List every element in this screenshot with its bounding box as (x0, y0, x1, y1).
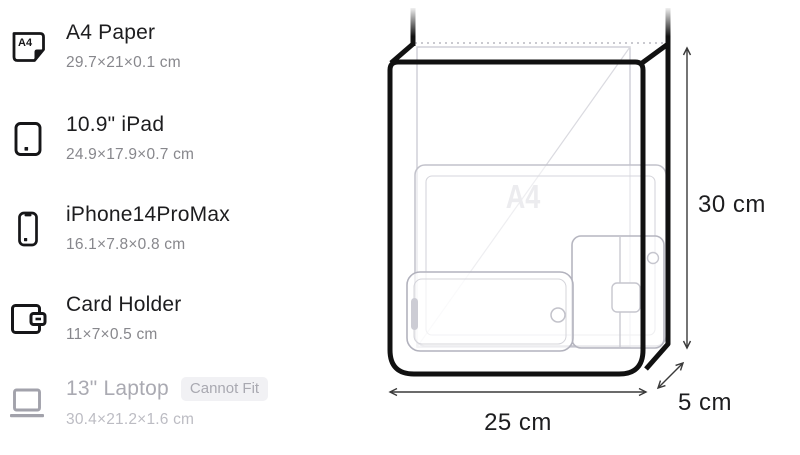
iphone-icon (8, 209, 48, 249)
bag-top-right-depth-edge (642, 44, 668, 63)
a4-paper-icon: A4 (8, 27, 48, 67)
a4-icon-label: A4 (18, 37, 33, 49)
list-item-laptop[interactable]: 13" Laptop Cannot Fit 30.4×21.2×1.6 cm (0, 377, 268, 429)
depth-dimension: 5 cm (658, 363, 732, 416)
item-title: 10.9" iPad (66, 114, 164, 136)
cannot-fit-badge: Cannot Fit (181, 377, 268, 401)
item-title: iPhone14ProMax (66, 204, 230, 226)
height-label: 30 cm (698, 191, 766, 218)
card-holder-icon (8, 299, 48, 339)
card-holder-shape (572, 236, 664, 348)
item-dimensions: 16.1×7.8×0.8 cm (66, 236, 230, 254)
item-title: 13" Laptop (66, 378, 169, 400)
laptop-icon (8, 383, 48, 423)
list-item-iphone[interactable]: iPhone14ProMax 16.1×7.8×0.8 cm (0, 204, 230, 254)
height-dimension: 30 cm (687, 48, 766, 348)
item-dimensions: 29.7×21×0.1 cm (66, 54, 181, 72)
depth-label: 5 cm (678, 389, 732, 416)
bag-capacity-widget: A4 A4 Paper 29.7×21×0.1 cm 10.9" iPad 24… (0, 0, 800, 455)
width-dimension: 25 cm (390, 392, 646, 436)
iphone-shape (407, 272, 573, 351)
width-label: 25 cm (484, 409, 552, 436)
ipad-icon (8, 119, 48, 159)
list-item-ipad[interactable]: 10.9" iPad 24.9×17.9×0.7 cm (0, 114, 194, 164)
bag-size-diagram: A4 (380, 0, 800, 455)
list-item-card-holder[interactable]: Card Holder 11×7×0.5 cm (0, 294, 181, 344)
item-dimensions: 30.4×21.2×1.6 cm (66, 411, 268, 429)
item-dimensions: 24.9×17.9×0.7 cm (66, 146, 194, 164)
item-title: A4 Paper (66, 22, 155, 44)
list-item-a4-paper[interactable]: A4 A4 Paper 29.7×21×0.1 cm (0, 22, 181, 72)
item-title: Card Holder (66, 294, 181, 316)
item-dimensions: 11×7×0.5 cm (66, 326, 181, 344)
